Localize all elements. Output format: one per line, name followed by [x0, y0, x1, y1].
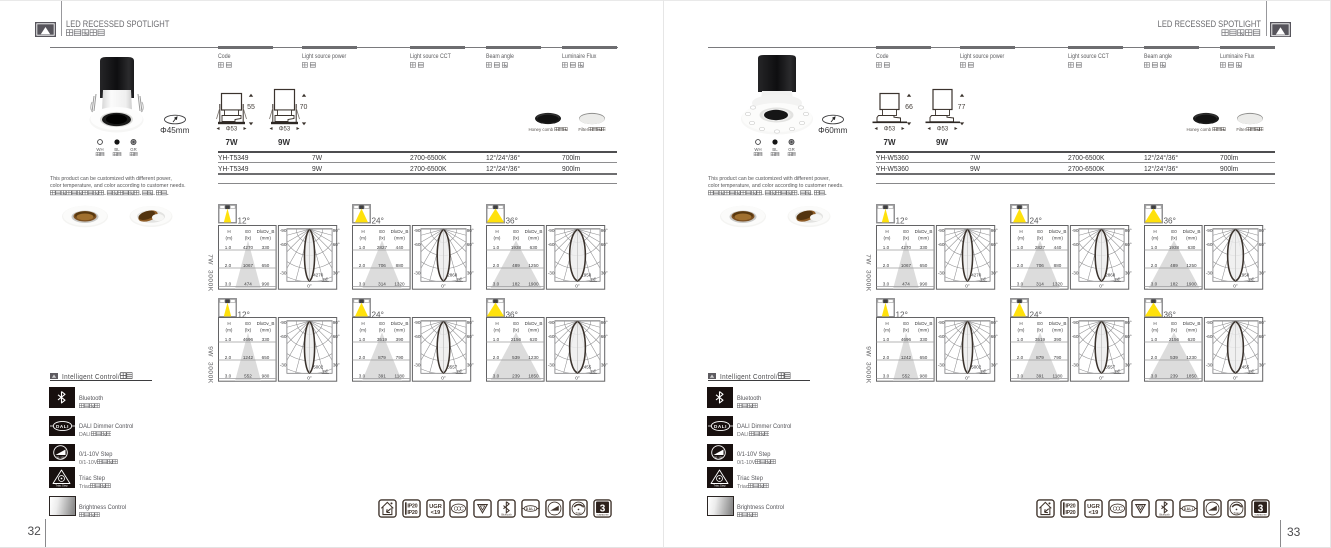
- svg-text:60°: 60°: [1259, 242, 1266, 247]
- svg-text:489: 489: [1170, 263, 1178, 268]
- svg-text:-60: -60: [938, 334, 945, 339]
- svg-text:-90: -90: [1206, 320, 1213, 325]
- svg-text:H: H: [362, 321, 365, 326]
- svg-text:-60: -60: [280, 242, 287, 247]
- svg-text:330: 330: [920, 245, 928, 250]
- svg-text:90°: 90°: [1125, 320, 1132, 325]
- svg-text:879: 879: [1036, 355, 1044, 360]
- svg-text:-90: -90: [1206, 228, 1213, 233]
- svg-text:-60: -60: [1072, 334, 1079, 339]
- svg-text:0/1-10V: 0/1-10V: [714, 455, 723, 459]
- svg-text:0°: 0°: [442, 376, 447, 381]
- svg-text:30°: 30°: [601, 271, 608, 276]
- svg-text:DALI: DALI: [1184, 507, 1193, 511]
- svg-text:990: 990: [262, 281, 270, 286]
- svg-text:<19: <19: [430, 510, 440, 516]
- svg-text:1230: 1230: [1187, 355, 1198, 360]
- svg-text:2.0: 2.0: [493, 355, 500, 360]
- svg-text:CCC: CCC: [454, 506, 464, 512]
- svg-text:(mm): (mm): [260, 328, 271, 333]
- svg-text:1.0: 1.0: [493, 245, 500, 250]
- svg-text:60°: 60°: [467, 242, 474, 247]
- svg-text:390: 390: [1054, 337, 1062, 342]
- svg-text:60°: 60°: [601, 242, 608, 247]
- svg-text:-90: -90: [280, 228, 287, 233]
- svg-text:36°: 36°: [1164, 217, 1176, 226]
- svg-text:3.0: 3.0: [1151, 281, 1158, 286]
- svg-text:552: 552: [902, 374, 910, 379]
- svg-text:DlxDv_B: DlxDv_B: [915, 321, 933, 326]
- svg-text:2.0: 2.0: [225, 355, 232, 360]
- svg-text:0°: 0°: [1234, 376, 1239, 381]
- svg-text:0°: 0°: [1234, 283, 1239, 288]
- svg-text:4270: 4270: [901, 245, 912, 250]
- svg-text:90°: 90°: [1259, 228, 1266, 233]
- svg-text:E0: E0: [513, 229, 519, 234]
- svg-text:IP20: IP20: [1065, 504, 1075, 510]
- svg-text:790: 790: [1054, 355, 1062, 360]
- svg-text:620: 620: [530, 337, 538, 342]
- svg-text:30°: 30°: [601, 363, 608, 368]
- svg-text:1.0: 1.0: [883, 245, 890, 250]
- svg-text:650: 650: [920, 355, 928, 360]
- svg-text:60°: 60°: [601, 334, 608, 339]
- svg-text:1230: 1230: [529, 355, 540, 360]
- svg-text:DlxDv_B: DlxDv_B: [1183, 229, 1201, 234]
- svg-text:3.0: 3.0: [493, 281, 500, 286]
- svg-text:Triac Step: Triac Step: [713, 484, 726, 488]
- svg-text:3.0: 3.0: [225, 374, 232, 379]
- svg-text:2.0: 2.0: [493, 263, 500, 268]
- svg-text:90°: 90°: [333, 320, 340, 325]
- svg-text:-90: -90: [1072, 320, 1079, 325]
- svg-text:-90: -90: [1072, 228, 1079, 233]
- svg-text:(lx): (lx): [903, 236, 910, 241]
- svg-text:-90: -90: [414, 320, 421, 325]
- svg-text:2156: 2156: [1169, 337, 1180, 342]
- svg-text:1067: 1067: [243, 263, 254, 268]
- svg-text:36°: 36°: [506, 217, 518, 226]
- svg-text:H: H: [886, 321, 889, 326]
- svg-text:60°: 60°: [1125, 242, 1132, 247]
- svg-text:60°: 60°: [1125, 334, 1132, 339]
- svg-text:1067: 1067: [901, 263, 912, 268]
- svg-text:cd: cd: [1115, 369, 1120, 374]
- svg-text:2.0: 2.0: [1151, 355, 1158, 360]
- svg-text:-30: -30: [1072, 363, 1079, 368]
- svg-text:1850: 1850: [1187, 374, 1198, 379]
- svg-text:DlxDv_B: DlxDv_B: [257, 229, 275, 234]
- svg-text:1.0: 1.0: [225, 245, 232, 250]
- svg-text:90°: 90°: [601, 228, 608, 233]
- svg-text:-30: -30: [280, 363, 287, 368]
- svg-text:(lx): (lx): [1171, 328, 1178, 333]
- svg-text:DlxDv_B: DlxDv_B: [391, 229, 409, 234]
- svg-text:DlxDv_B: DlxDv_B: [525, 321, 543, 326]
- svg-text:(lx): (lx): [245, 328, 252, 333]
- svg-text:(lx): (lx): [1037, 236, 1044, 241]
- svg-text:239: 239: [1170, 374, 1178, 379]
- svg-text:-90: -90: [280, 320, 287, 325]
- svg-text:3.0: 3.0: [493, 374, 500, 379]
- svg-text:0°: 0°: [442, 283, 447, 288]
- svg-text:706: 706: [1036, 263, 1044, 268]
- svg-text:650: 650: [262, 263, 270, 268]
- svg-text:1.0: 1.0: [359, 245, 366, 250]
- svg-text:3: 3: [1257, 503, 1263, 514]
- svg-text:-60: -60: [414, 242, 421, 247]
- svg-text:-60: -60: [548, 242, 555, 247]
- svg-text:4270: 4270: [243, 245, 254, 250]
- svg-text:2.0: 2.0: [225, 263, 232, 268]
- svg-text:Φ53: Φ53: [278, 127, 290, 133]
- svg-text:1.0: 1.0: [493, 337, 500, 342]
- svg-text:-30: -30: [414, 271, 421, 276]
- svg-text:(m): (m): [1152, 236, 1159, 241]
- svg-text:<19: <19: [1088, 510, 1098, 516]
- svg-text:60°: 60°: [333, 334, 340, 339]
- svg-text:620: 620: [1188, 337, 1196, 342]
- svg-text:H: H: [1154, 321, 1157, 326]
- svg-text:630: 630: [1188, 245, 1196, 250]
- svg-text:(lx): (lx): [513, 236, 520, 241]
- svg-text:2.0: 2.0: [1017, 263, 1024, 268]
- svg-text:539: 539: [512, 355, 520, 360]
- svg-text:1938: 1938: [511, 245, 522, 250]
- svg-text:-30: -30: [548, 363, 555, 368]
- svg-text:cd: cd: [591, 277, 596, 282]
- svg-text:DALI: DALI: [526, 507, 535, 511]
- svg-text:DlxDv_B: DlxDv_B: [1049, 229, 1067, 234]
- svg-text:90°: 90°: [1259, 320, 1266, 325]
- svg-text:90°: 90°: [467, 320, 474, 325]
- svg-text:cd: cd: [457, 277, 462, 282]
- svg-text:-30: -30: [1206, 363, 1213, 368]
- svg-text:330: 330: [262, 245, 270, 250]
- svg-text:2.0: 2.0: [359, 263, 366, 268]
- svg-text:1850: 1850: [529, 374, 540, 379]
- svg-text:3519: 3519: [377, 337, 388, 342]
- svg-text:(m): (m): [494, 328, 501, 333]
- svg-text:0/1-10V: 0/1-10V: [550, 513, 558, 515]
- svg-text:-30: -30: [1072, 271, 1079, 276]
- svg-text:Φ53: Φ53: [936, 127, 948, 133]
- svg-text:DlxDv_B: DlxDv_B: [257, 321, 275, 326]
- svg-text:4696: 4696: [243, 337, 254, 342]
- svg-text:1.0: 1.0: [1151, 337, 1158, 342]
- svg-text:2827: 2827: [1035, 245, 1046, 250]
- svg-text:cd: cd: [457, 369, 462, 374]
- svg-text:E0: E0: [379, 321, 385, 326]
- svg-text:1.0: 1.0: [1017, 245, 1024, 250]
- svg-text:24°: 24°: [1030, 217, 1042, 226]
- svg-text:330: 330: [262, 337, 270, 342]
- svg-text:474: 474: [244, 281, 252, 286]
- svg-text:-30: -30: [548, 271, 555, 276]
- svg-text:1320: 1320: [1053, 281, 1064, 286]
- svg-text:0°: 0°: [1100, 283, 1105, 288]
- svg-text:cd: cd: [981, 369, 986, 374]
- svg-text:391: 391: [1036, 374, 1044, 379]
- svg-text:Triac: Triac: [1233, 511, 1240, 515]
- svg-text:3519: 3519: [1035, 337, 1046, 342]
- svg-text:Φ53: Φ53: [884, 127, 896, 133]
- svg-text:30°: 30°: [991, 271, 998, 276]
- svg-text:(mm): (mm): [260, 236, 271, 241]
- svg-text:1.0: 1.0: [883, 337, 890, 342]
- svg-text:60°: 60°: [467, 334, 474, 339]
- svg-text:440: 440: [1054, 245, 1062, 250]
- svg-text:-90: -90: [414, 228, 421, 233]
- svg-text:Triac: Triac: [575, 511, 582, 515]
- svg-text:-60: -60: [1206, 334, 1213, 339]
- svg-text:650: 650: [920, 263, 928, 268]
- svg-text:(m): (m): [360, 328, 367, 333]
- svg-text:H: H: [496, 229, 499, 234]
- svg-text:3.0: 3.0: [359, 374, 366, 379]
- svg-text:-90: -90: [548, 228, 555, 233]
- svg-text:(mm): (mm): [394, 328, 405, 333]
- svg-text:(m): (m): [226, 328, 233, 333]
- svg-text:(mm): (mm): [1052, 328, 1063, 333]
- svg-text:IP20: IP20: [1065, 510, 1075, 516]
- svg-text:12°: 12°: [896, 217, 908, 226]
- svg-text:30°: 30°: [1125, 363, 1132, 368]
- svg-text:4696: 4696: [901, 337, 912, 342]
- svg-text:90°: 90°: [333, 228, 340, 233]
- svg-text:(lx): (lx): [379, 236, 386, 241]
- svg-text:(lx): (lx): [513, 328, 520, 333]
- svg-text:60°: 60°: [991, 242, 998, 247]
- svg-text:879: 879: [378, 355, 386, 360]
- svg-text:390: 390: [396, 337, 404, 342]
- svg-text:0°: 0°: [576, 376, 581, 381]
- svg-text:3: 3: [599, 503, 605, 514]
- svg-text:(mm): (mm): [394, 236, 405, 241]
- svg-text:H: H: [228, 229, 231, 234]
- svg-text:182: 182: [512, 281, 520, 286]
- svg-text:H: H: [886, 229, 889, 234]
- svg-text:-90: -90: [548, 320, 555, 325]
- svg-text:cd: cd: [981, 277, 986, 282]
- svg-text:E0: E0: [1171, 229, 1177, 234]
- svg-text:0/1-10V: 0/1-10V: [1208, 513, 1216, 515]
- svg-text:GUARANTEE: GUARANTEE: [596, 514, 609, 517]
- svg-text:E0: E0: [1037, 321, 1043, 326]
- svg-text:cd: cd: [591, 369, 596, 374]
- svg-text:330: 330: [920, 337, 928, 342]
- svg-text:391: 391: [378, 374, 386, 379]
- svg-text:-90: -90: [938, 228, 945, 233]
- svg-text:cd: cd: [323, 277, 328, 282]
- svg-text:E0: E0: [245, 229, 251, 234]
- svg-text:H: H: [496, 321, 499, 326]
- svg-text:980: 980: [262, 374, 270, 379]
- svg-text:Φ53: Φ53: [226, 127, 238, 133]
- svg-text:0°: 0°: [308, 376, 313, 381]
- svg-text:3.0: 3.0: [359, 281, 366, 286]
- svg-text:Triac Step: Triac Step: [55, 484, 68, 488]
- svg-text:-60: -60: [548, 334, 555, 339]
- svg-text:2156: 2156: [511, 337, 522, 342]
- svg-text:1242: 1242: [243, 355, 254, 360]
- svg-text:30°: 30°: [1259, 363, 1266, 368]
- svg-text:60°: 60°: [991, 334, 998, 339]
- svg-text:UGR: UGR: [1087, 504, 1100, 510]
- svg-text:1320: 1320: [395, 281, 406, 286]
- svg-text:1.0: 1.0: [1151, 245, 1158, 250]
- svg-text:60°: 60°: [1259, 334, 1266, 339]
- svg-text:IP20: IP20: [407, 510, 417, 516]
- svg-text:3.0: 3.0: [1017, 374, 1024, 379]
- svg-text:-30: -30: [1206, 271, 1213, 276]
- svg-text:DlxDv_B: DlxDv_B: [915, 229, 933, 234]
- svg-text:90°: 90°: [991, 320, 998, 325]
- svg-text:1.0: 1.0: [1017, 337, 1024, 342]
- svg-text:-60: -60: [280, 334, 287, 339]
- svg-text:314: 314: [378, 281, 386, 286]
- svg-text:489: 489: [512, 263, 520, 268]
- svg-text:CCC: CCC: [1112, 506, 1122, 512]
- svg-text:30°: 30°: [333, 363, 340, 368]
- svg-text:24°: 24°: [372, 217, 384, 226]
- svg-text:2.0: 2.0: [883, 355, 890, 360]
- svg-text:(mm): (mm): [528, 236, 539, 241]
- svg-text:12°: 12°: [238, 217, 250, 226]
- svg-text:706: 706: [378, 263, 386, 268]
- svg-text:3.0: 3.0: [225, 281, 232, 286]
- svg-text:DlxDv_B: DlxDv_B: [391, 321, 409, 326]
- svg-text:cd: cd: [1249, 277, 1254, 282]
- svg-text:-30: -30: [280, 271, 287, 276]
- svg-text:90°: 90°: [991, 228, 998, 233]
- svg-text:0/1-10V: 0/1-10V: [56, 455, 65, 459]
- svg-text:(mm): (mm): [918, 236, 929, 241]
- svg-text:2.0: 2.0: [883, 263, 890, 268]
- svg-text:(m): (m): [360, 236, 367, 241]
- svg-text:1.0: 1.0: [225, 337, 232, 342]
- svg-text:539: 539: [1170, 355, 1178, 360]
- svg-text:-60: -60: [938, 242, 945, 247]
- svg-text:3.0: 3.0: [883, 281, 890, 286]
- svg-text:-60: -60: [1206, 242, 1213, 247]
- svg-text:(mm): (mm): [918, 328, 929, 333]
- svg-text:2.0: 2.0: [1017, 355, 1024, 360]
- svg-text:Bluetooth: Bluetooth: [1160, 513, 1171, 516]
- svg-text:(mm): (mm): [528, 328, 539, 333]
- svg-text:(lx): (lx): [1037, 328, 1044, 333]
- svg-text:0°: 0°: [966, 376, 971, 381]
- svg-text:cd: cd: [1115, 277, 1120, 282]
- svg-text:474: 474: [902, 281, 910, 286]
- svg-text:239: 239: [512, 374, 520, 379]
- svg-text:-60: -60: [414, 334, 421, 339]
- svg-text:0°: 0°: [576, 283, 581, 288]
- svg-text:90°: 90°: [467, 228, 474, 233]
- svg-text:(lx): (lx): [245, 236, 252, 241]
- svg-text:DlxDv_B: DlxDv_B: [1183, 321, 1201, 326]
- svg-text:980: 980: [920, 374, 928, 379]
- svg-text:(lx): (lx): [1171, 236, 1178, 241]
- svg-text:1242: 1242: [901, 355, 912, 360]
- svg-text:-30: -30: [938, 363, 945, 368]
- svg-text:(m): (m): [884, 236, 891, 241]
- svg-text:0°: 0°: [1100, 376, 1105, 381]
- svg-text:1250: 1250: [1187, 263, 1198, 268]
- svg-text:(mm): (mm): [1186, 236, 1197, 241]
- svg-text:314: 314: [1036, 281, 1044, 286]
- svg-text:H: H: [1020, 229, 1023, 234]
- svg-text:30°: 30°: [467, 271, 474, 276]
- svg-text:0°: 0°: [308, 283, 313, 288]
- svg-text:(mm): (mm): [1052, 236, 1063, 241]
- svg-text:E0: E0: [903, 321, 909, 326]
- svg-text:650: 650: [262, 355, 270, 360]
- svg-text:1938: 1938: [1169, 245, 1180, 250]
- svg-text:cd: cd: [323, 369, 328, 374]
- svg-text:182: 182: [1170, 281, 1178, 286]
- svg-text:30°: 30°: [333, 271, 340, 276]
- svg-text:30°: 30°: [467, 363, 474, 368]
- svg-text:30°: 30°: [1125, 271, 1132, 276]
- svg-text:630: 630: [530, 245, 538, 250]
- svg-text:E0: E0: [1171, 321, 1177, 326]
- svg-text:1.0: 1.0: [359, 337, 366, 342]
- svg-text:IP20: IP20: [407, 504, 417, 510]
- svg-text:3.0: 3.0: [883, 374, 890, 379]
- svg-text:30°: 30°: [1259, 271, 1266, 276]
- svg-text:(mm): (mm): [1186, 328, 1197, 333]
- svg-text:0°: 0°: [966, 283, 971, 288]
- svg-text:UGR: UGR: [429, 504, 442, 510]
- svg-text:1180: 1180: [395, 374, 405, 379]
- svg-text:1900: 1900: [529, 281, 540, 286]
- svg-text:H: H: [362, 229, 365, 234]
- svg-text:790: 790: [396, 355, 404, 360]
- svg-text:440: 440: [396, 245, 404, 250]
- svg-text:E0: E0: [513, 321, 519, 326]
- svg-text:2.0: 2.0: [359, 355, 366, 360]
- svg-text:1900: 1900: [1187, 281, 1198, 286]
- svg-text:E0: E0: [379, 229, 385, 234]
- svg-text:DALI: DALI: [714, 423, 727, 428]
- svg-text:H: H: [228, 321, 231, 326]
- svg-text:-60: -60: [1072, 242, 1079, 247]
- svg-text:E0: E0: [1037, 229, 1043, 234]
- svg-text:3.0: 3.0: [1151, 374, 1158, 379]
- svg-text:cd: cd: [1249, 369, 1254, 374]
- svg-text:90°: 90°: [1125, 228, 1132, 233]
- svg-text:(m): (m): [226, 236, 233, 241]
- svg-text:2.0: 2.0: [1151, 263, 1158, 268]
- svg-text:552: 552: [244, 374, 252, 379]
- svg-text:E0: E0: [245, 321, 251, 326]
- svg-text:880: 880: [396, 263, 404, 268]
- svg-text:(lx): (lx): [379, 328, 386, 333]
- svg-text:DlxDv_B: DlxDv_B: [525, 229, 543, 234]
- svg-text:90°: 90°: [601, 320, 608, 325]
- svg-text:(m): (m): [884, 328, 891, 333]
- svg-text:60°: 60°: [333, 242, 340, 247]
- svg-text:DlxDv_B: DlxDv_B: [1049, 321, 1067, 326]
- svg-text:(m): (m): [1018, 236, 1025, 241]
- svg-text:3.0: 3.0: [1017, 281, 1024, 286]
- svg-text:880: 880: [1054, 263, 1062, 268]
- svg-text:GUARANTEE: GUARANTEE: [1254, 514, 1267, 517]
- svg-text:(m): (m): [494, 236, 501, 241]
- svg-text:H: H: [1020, 321, 1023, 326]
- svg-text:2827: 2827: [377, 245, 388, 250]
